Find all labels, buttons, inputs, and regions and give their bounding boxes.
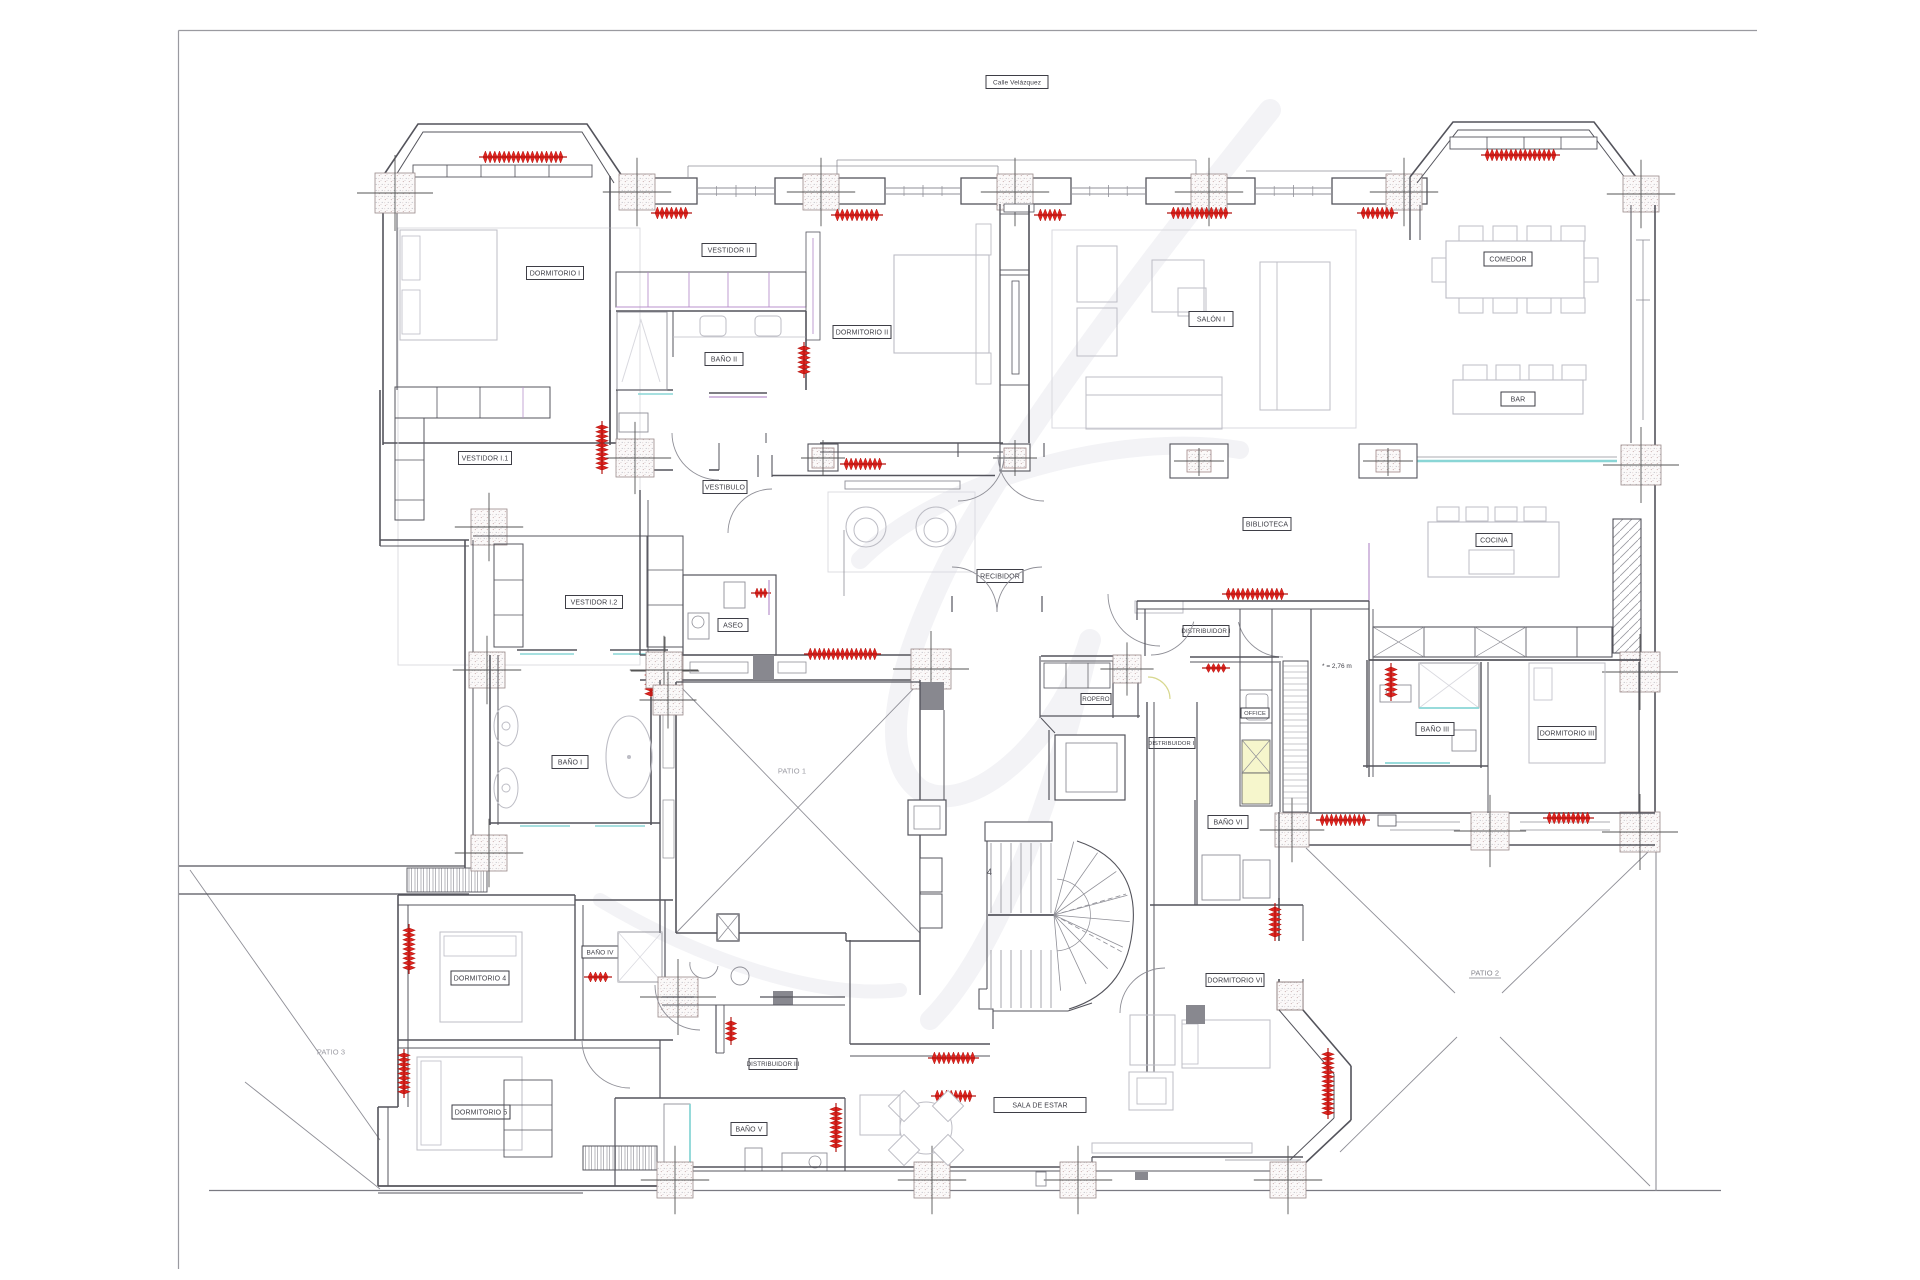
svg-text:PATIO 3: PATIO 3: [317, 1048, 345, 1057]
svg-text:BAÑO I: BAÑO I: [558, 758, 582, 767]
svg-text:DORMITORIO I: DORMITORIO I: [530, 271, 580, 278]
svg-text:PATIO 2: PATIO 2: [1471, 969, 1499, 978]
svg-text:PATIO 1: PATIO 1: [778, 767, 806, 776]
svg-text:DORMITORIO 5: DORMITORIO 5: [455, 1110, 507, 1117]
svg-text:DORMITORIO II: DORMITORIO II: [836, 330, 889, 337]
svg-text:VESTIDOR I.1: VESTIDOR I.1: [462, 456, 509, 463]
svg-text:VESTIBULO: VESTIBULO: [705, 485, 746, 492]
svg-text:ASEO: ASEO: [723, 623, 743, 630]
svg-text:BAÑO V: BAÑO V: [735, 1125, 762, 1134]
svg-text:DORMITORIO 4: DORMITORIO 4: [454, 976, 506, 983]
svg-text:DISTRIBUIDOR II: DISTRIBUIDOR II: [1148, 741, 1196, 747]
svg-text:ROPERO: ROPERO: [1082, 696, 1110, 703]
svg-text:VESTIDOR I.2: VESTIDOR I.2: [571, 600, 618, 607]
svg-text:VESTIDOR II: VESTIDOR II: [708, 248, 751, 255]
svg-text:SALA DE ESTAR: SALA DE ESTAR: [1012, 1103, 1067, 1110]
svg-text:DORMITORIO III: DORMITORIO III: [1540, 731, 1595, 738]
svg-text:BIBLIOTECA: BIBLIOTECA: [1246, 522, 1288, 529]
svg-text:BAÑO VI: BAÑO VI: [1213, 818, 1242, 827]
svg-text:DISTRIBUIDOR III: DISTRIBUIDOR III: [747, 1061, 800, 1068]
svg-text:BAÑO II: BAÑO II: [711, 355, 737, 364]
svg-text:BAR: BAR: [1511, 397, 1526, 404]
svg-text:COCINA: COCINA: [1480, 538, 1508, 545]
svg-text:BAÑO III: BAÑO III: [1421, 725, 1449, 734]
svg-text:OFFICE: OFFICE: [1244, 711, 1266, 717]
svg-text:SALÓN I: SALÓN I: [1197, 315, 1225, 324]
svg-text:* = 2,76 m: * = 2,76 m: [1322, 663, 1352, 670]
svg-text:COMEDOR: COMEDOR: [1489, 257, 1526, 264]
svg-text:BAÑO IV: BAÑO IV: [586, 947, 614, 956]
svg-text:Calle Velázquez: Calle Velázquez: [993, 79, 1041, 86]
svg-text:DORMITORIO VI: DORMITORIO VI: [1207, 978, 1262, 985]
